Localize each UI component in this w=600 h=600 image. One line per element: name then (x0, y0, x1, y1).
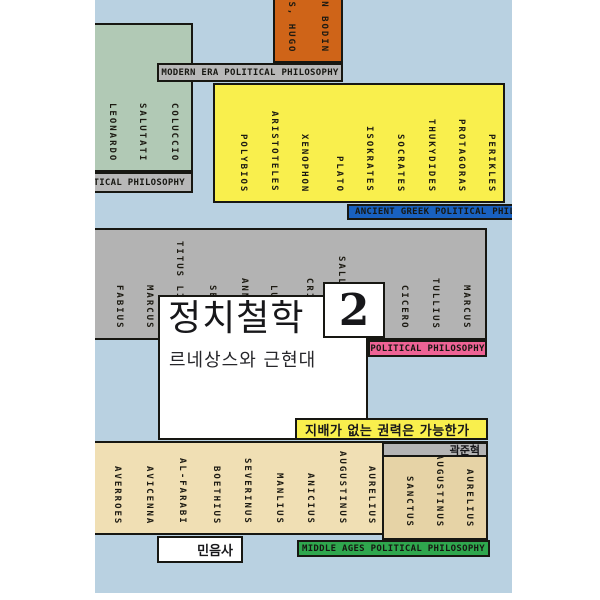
philosopher-name: POLYBIOS (238, 134, 248, 193)
philosopher-name: GROTIUS, HUGO (286, 0, 296, 53)
augustine-block: SANCTUS AUGUSTINUS AURELIUS (382, 455, 488, 540)
philosopher-name: JEAN BODIN (319, 0, 329, 53)
philosopher-name: ISOKRATES (364, 126, 374, 193)
philosopher-name: THUKYDIDES (426, 119, 436, 193)
publisher-name: 민음사 (197, 540, 233, 559)
philosopher-name: BOETHIUS (211, 466, 221, 525)
philosopher-name: MARCUS (461, 285, 471, 330)
philosopher-name: AUGUSTINUS (434, 454, 444, 528)
philosopher-name: CICERO (399, 285, 409, 330)
tag-label: RENAISSANCE POLITICAL PHILOSOPHY (95, 178, 185, 188)
philosopher-name: PROTAGORAS (456, 119, 466, 193)
philosopher-name: SOCRATES (395, 134, 405, 193)
philosopher-name: AL-FARABI (177, 458, 187, 525)
philosopher-name: SANCTUS (404, 476, 414, 528)
modern-block: GROTIUS, HUGO JEAN BODIN (273, 0, 343, 63)
philosopher-name: AVERROES (112, 466, 122, 525)
page: { "cover": { "title": "정치철학", "volume": … (0, 0, 600, 600)
philosopher-name: ANICIUS (305, 473, 315, 525)
tagline-text: 지배가 없는 권력은 가능한가 (305, 420, 470, 439)
author-tag: 곽준혁 (382, 442, 488, 457)
philosopher-name: SEVERINUS (242, 458, 252, 525)
philosopher-name: XENOPHON (299, 134, 309, 193)
philosopher-name: MARCUS (144, 285, 154, 330)
tag-modern-era-political-philosophy: MODERN ERA POLITICAL PHILOSOPHY (157, 63, 343, 82)
philosopher-name: AVICENNA (144, 466, 154, 525)
tagline-banner: 지배가 없는 권력은 가능한가 (295, 418, 488, 440)
tag-ancient-greek-political-philosophy: ANCIENT GREEK POLITICAL PHILOSOPHY (347, 204, 512, 220)
philosopher-name: PLATO (334, 156, 344, 193)
book-cover: LEONARDO SALUTATI COLUCCIO RENAISSANCE P… (95, 0, 512, 593)
philosopher-name: COLUCCIO (169, 103, 179, 162)
volume-box: 2 (323, 282, 385, 338)
tag-label: ANCIENT GREEK POLITICAL PHILOSOPHY (355, 207, 512, 217)
philosopher-name: SALUTATI (137, 103, 147, 162)
author-name: 곽준혁 (450, 442, 480, 458)
publisher-box: 민음사 (157, 536, 243, 563)
renaissance-block: LEONARDO SALUTATI COLUCCIO (95, 23, 193, 172)
philosopher-name: LEONARDO (107, 103, 117, 162)
philosopher-name: PERIKLES (486, 134, 496, 193)
philosopher-name: AUGUSTINUS (337, 451, 347, 525)
tag-renaissance-political-philosophy: RENAISSANCE POLITICAL PHILOSOPHY (95, 172, 193, 193)
book-subtitle: 르네상스와 근현대 (169, 346, 366, 372)
tag-label: MODERN ERA POLITICAL PHILOSOPHY (161, 68, 338, 78)
volume-number: 2 (325, 284, 383, 336)
greek-block: POLYBIOS ARISTOTELES XENOPHON PLATO ISOK… (213, 83, 505, 203)
tag-political-philosophy: POLITICAL PHILOSOPHY (368, 340, 487, 357)
philosopher-name: ARISTOTELES (269, 111, 279, 193)
philosopher-name: FABIUS (114, 285, 124, 330)
tag-label: POLITICAL PHILOSOPHY (370, 344, 484, 354)
tag-middle-ages-political-philosophy: MIDDLE AGES POLITICAL PHILOSOPHY (297, 540, 490, 557)
tag-label: MIDDLE AGES POLITICAL PHILOSOPHY (302, 544, 485, 554)
philosopher-name: AURELIUS (464, 469, 474, 528)
philosopher-name: MANLIUS (274, 473, 284, 525)
philosopher-name: AURELIUS (366, 466, 376, 525)
philosopher-name: TULLIUS (430, 278, 440, 330)
